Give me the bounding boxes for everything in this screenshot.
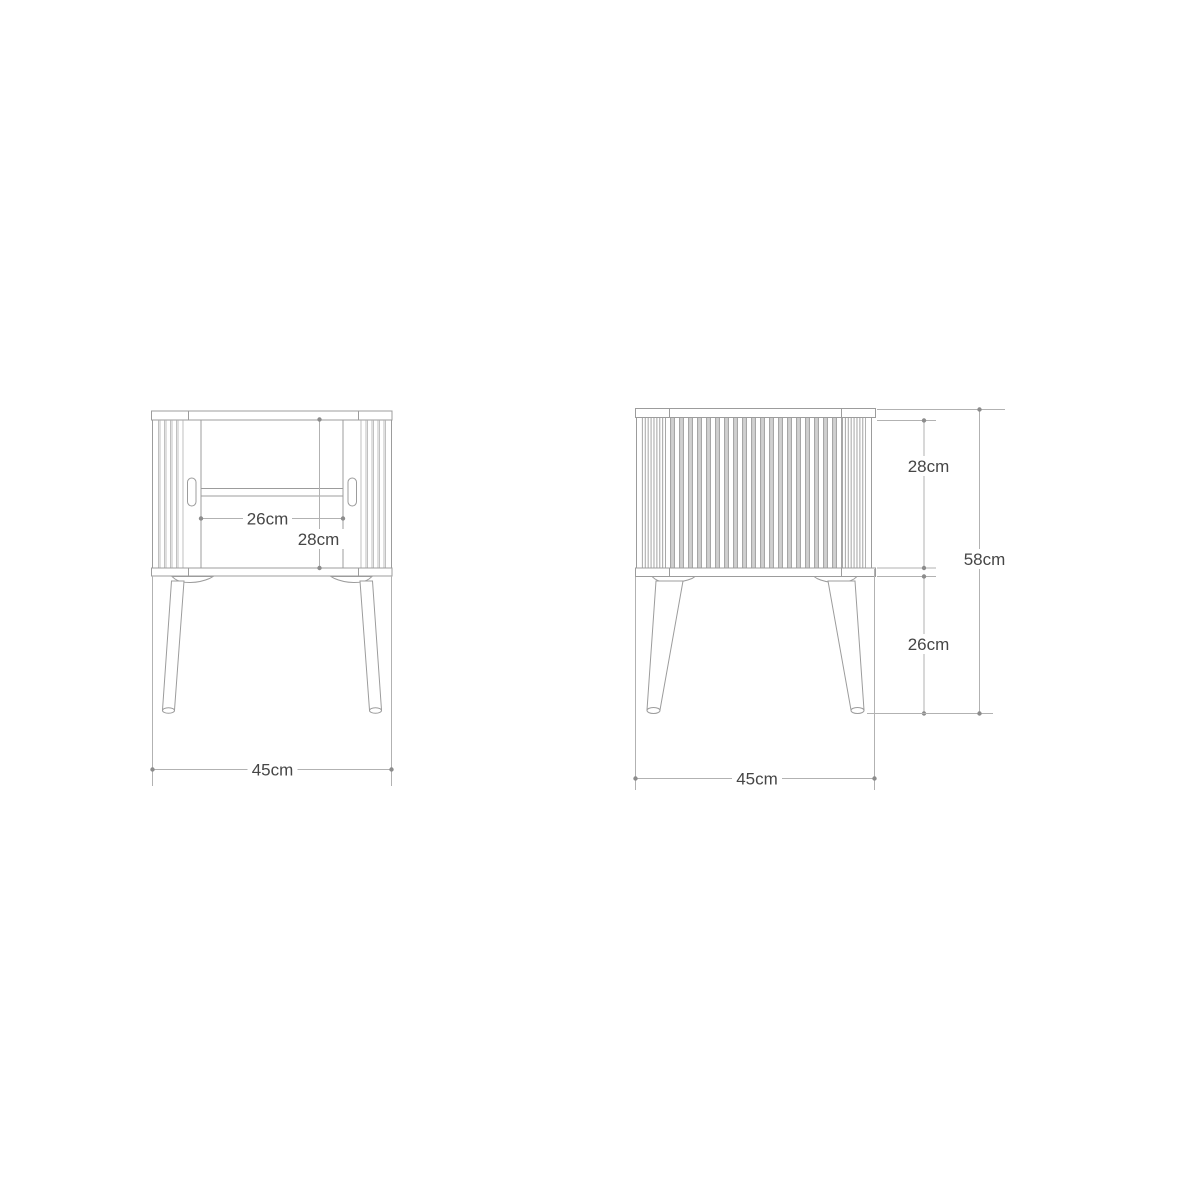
front-right-door-handle	[348, 478, 357, 506]
front-bottom-board	[152, 568, 393, 576]
dim-side-overall-height: 58cm	[867, 407, 1011, 715]
side-view: 28cm 26cm 58cm	[633, 407, 1010, 790]
front-shelf	[201, 489, 343, 497]
front-left-leg-tip	[163, 708, 175, 714]
side-body-height-label: 28cm	[908, 457, 950, 476]
side-bottom-board	[636, 568, 876, 577]
front-overall-width-label: 45cm	[252, 761, 294, 780]
dim-front-opening-width: 26cm	[199, 509, 345, 529]
dim-side-body-height: 28cm	[877, 418, 954, 570]
front-tambour-left-stile	[159, 420, 184, 568]
side-tambour-slats	[666, 418, 842, 569]
technical-drawing: 26cm 28cm 45cm	[0, 0, 1200, 1200]
front-view: 26cm 28cm 45cm	[150, 411, 393, 786]
front-left-leg	[163, 577, 214, 714]
front-interior-height-label: 28cm	[298, 530, 340, 549]
dim-side-leg-height: 26cm	[877, 574, 954, 715]
side-tambour-right-dense	[842, 418, 866, 569]
side-leg-height-label: 26cm	[908, 635, 950, 654]
dim-front-overall-width: 45cm	[150, 576, 393, 786]
front-left-door-handle	[188, 478, 197, 506]
dim-front-interior-height-label: 28cm	[294, 529, 344, 549]
side-front-leg-tip	[647, 708, 660, 714]
front-right-leg	[331, 577, 382, 714]
side-depth-label: 45cm	[736, 770, 778, 789]
front-tambour-right-stile	[361, 420, 386, 568]
front-opening-width-label: 26cm	[247, 510, 289, 529]
side-overall-height-label: 58cm	[964, 550, 1006, 569]
front-right-leg-tip	[370, 708, 382, 714]
page-canvas: 26cm 28cm 45cm	[0, 0, 1200, 1200]
front-top-board	[152, 411, 393, 420]
side-top-board	[636, 409, 876, 418]
side-rear-leg	[814, 577, 864, 714]
side-tambour-panel	[637, 418, 872, 569]
side-tambour-left-dense	[640, 418, 666, 569]
side-front-leg	[647, 577, 695, 714]
side-rear-leg-tip	[851, 708, 864, 714]
